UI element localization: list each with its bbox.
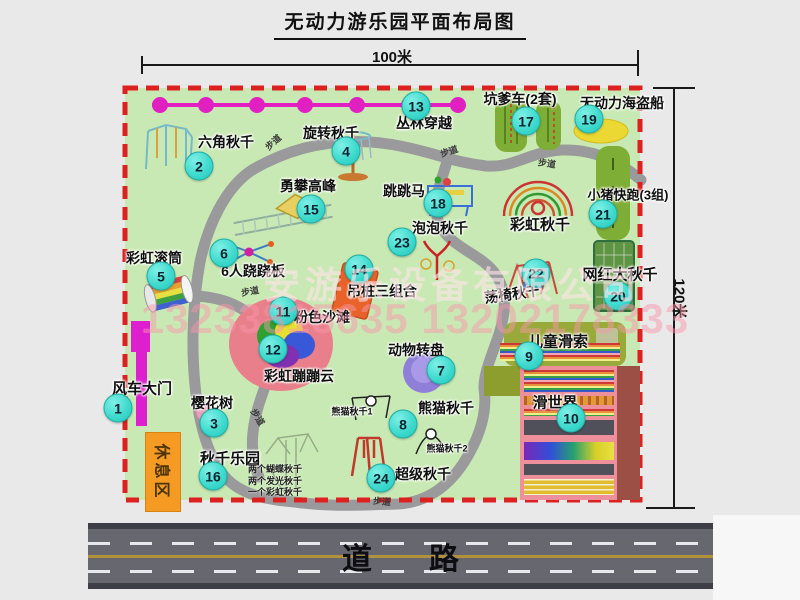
pirate-ship-graphic bbox=[574, 119, 628, 143]
panda-swing-graphic bbox=[352, 396, 446, 454]
rotating-swing-graphic bbox=[335, 132, 371, 181]
road-label: 道路 bbox=[88, 529, 713, 583]
park-layout-map: 无动力游乐园平面布局图 100米 120米 bbox=[0, 0, 800, 600]
big-swing-net-graphic bbox=[594, 241, 634, 311]
slide-world-deck bbox=[484, 366, 520, 396]
gate-graphic bbox=[131, 321, 150, 426]
hex-swing-graphic bbox=[146, 125, 192, 170]
pig-run-graphic bbox=[596, 146, 630, 240]
slide-band-4 bbox=[524, 420, 614, 435]
super-swing-graphic bbox=[352, 437, 385, 476]
slide-band-7 bbox=[524, 479, 614, 495]
slide-rainbow-band bbox=[500, 343, 620, 361]
bubble-swing-graphic bbox=[421, 241, 454, 280]
swing-chair-graphic bbox=[506, 262, 557, 298]
slide-band-5 bbox=[524, 442, 614, 460]
rainbow-roller-graphic bbox=[142, 274, 195, 313]
swing-park-sketch-graphic bbox=[266, 434, 318, 500]
dimension-width-label: 100米 bbox=[372, 46, 412, 67]
climbing-peak-graphic bbox=[231, 191, 333, 235]
slide-band-3 bbox=[524, 409, 614, 416]
rest-area-label: 休息区 bbox=[151, 443, 175, 500]
jungle-chain-graphic bbox=[152, 97, 466, 113]
animal-turntable-graphic bbox=[403, 351, 445, 393]
rest-area: 休息区 bbox=[145, 432, 181, 512]
slide-band-6 bbox=[524, 464, 614, 475]
slide-band-2 bbox=[524, 396, 614, 405]
hanging-piles-graphic bbox=[331, 262, 378, 319]
slide-band-1 bbox=[524, 370, 614, 392]
rainbow-swing-graphic bbox=[504, 182, 572, 216]
seesaw-graphic bbox=[225, 241, 274, 265]
page-title: 无动力游乐园平面布局图 bbox=[0, 7, 800, 40]
dimension-height-label: 120米 bbox=[670, 278, 691, 318]
pit-cars-graphic bbox=[495, 99, 561, 152]
bouncing-cloud-graphic bbox=[229, 297, 333, 391]
road: 道路 bbox=[88, 523, 713, 589]
slide-world-wall bbox=[617, 366, 640, 500]
